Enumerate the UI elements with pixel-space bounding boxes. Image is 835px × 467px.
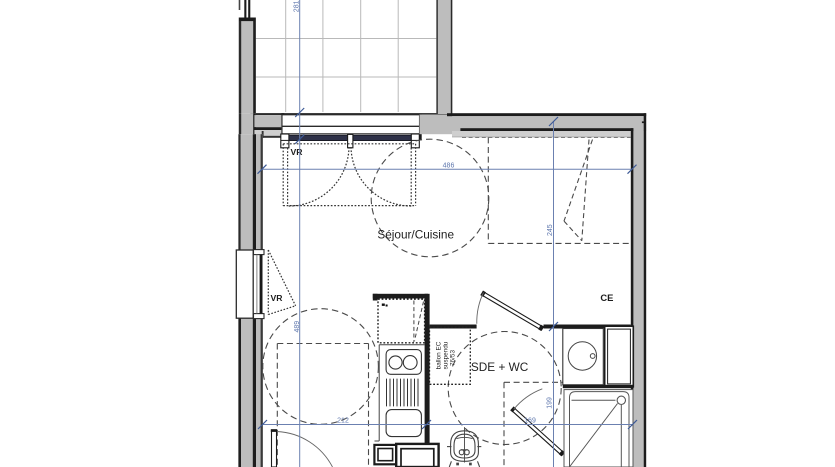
svg-text:199: 199 [546,397,553,409]
svg-text:CE: CE [600,292,613,303]
svg-text:VR: VR [271,293,284,303]
svg-text:SDE + WC: SDE + WC [471,360,529,374]
svg-text:VR: VR [291,147,304,157]
svg-text:281: 281 [294,0,301,12]
svg-text:212: 212 [337,417,349,424]
svg-text:suspendu: suspendu [443,341,450,369]
svg-text:489: 489 [294,321,301,333]
svg-text:245: 245 [547,224,554,236]
svg-text:76/53: 76/53 [450,350,457,366]
svg-text:ballon EC: ballon EC [436,341,443,369]
svg-text:169: 169 [524,418,536,425]
svg-text:Séjour/Cuisine: Séjour/Cuisine [377,228,454,242]
svg-text:486: 486 [443,163,455,170]
